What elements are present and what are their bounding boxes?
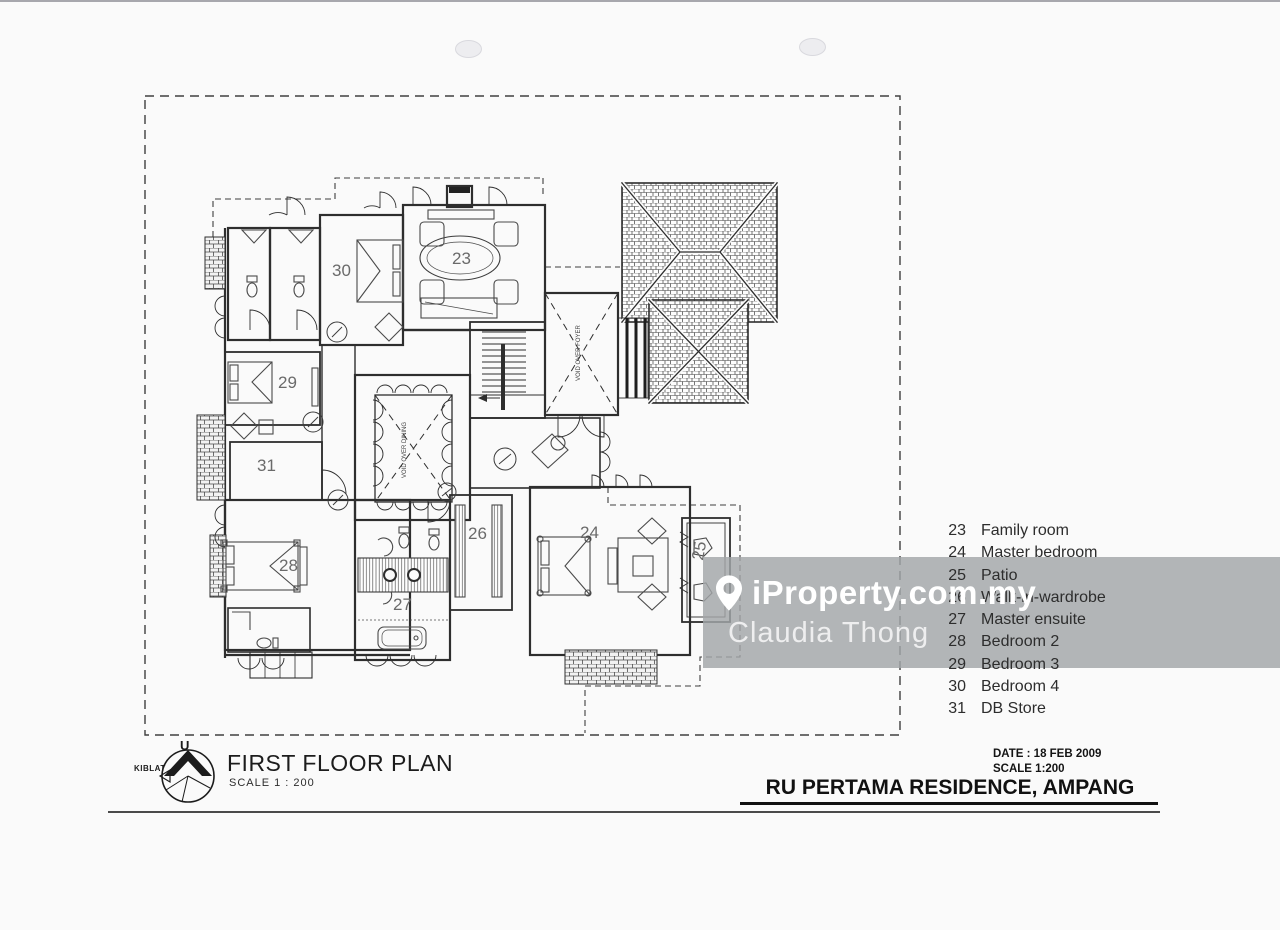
toilet: [294, 276, 304, 297]
legend-number: 28: [936, 631, 966, 653]
legend-label: Family room: [966, 520, 1069, 542]
watermark-brand-text: iProperty.com.my: [752, 574, 1036, 612]
legend-label: Bedroom 4: [966, 676, 1059, 698]
rug: [618, 538, 668, 592]
tv-console: [312, 368, 318, 406]
wardrobe-runs: [455, 505, 502, 597]
footer-rule: [108, 811, 1160, 813]
legend-label: Master ensuite: [966, 609, 1086, 631]
legend-label: Bedroom 3: [966, 654, 1059, 676]
shower: [242, 230, 266, 243]
watermark-agent-text: Claudia Thong: [728, 617, 929, 650]
legend-item: 27 Master ensuite: [936, 609, 1106, 631]
room-legend: 23 Family room 24 Master bedroom 25 Pati…: [936, 520, 1106, 721]
stairs: [470, 332, 545, 410]
bed-bedroom4: [357, 240, 403, 302]
ottoman: [633, 556, 653, 576]
chair: [231, 413, 257, 439]
tv-console: [300, 547, 307, 585]
shower: [232, 612, 250, 630]
map-pin-icon: [716, 575, 742, 611]
legend-label: DB Store: [966, 698, 1046, 720]
armchair: [494, 280, 518, 304]
watermark-brand: iProperty.com.my: [716, 574, 1036, 612]
chair: [638, 584, 666, 610]
shower: [289, 230, 313, 243]
roof: [618, 183, 777, 403]
plan-title: FIRST FLOOR PLAN: [227, 750, 453, 777]
toilet: [247, 276, 257, 297]
room-label-24: 24: [580, 523, 599, 542]
watermark-agent: Claudia Thong: [728, 617, 929, 650]
legend-number: 31: [936, 698, 966, 720]
room-label-31: 31: [257, 456, 276, 475]
legend-number: 29: [936, 654, 966, 676]
legend-item: 31 DB Store: [936, 698, 1106, 720]
toilet: [399, 527, 409, 548]
project-underline: [740, 802, 1158, 805]
bathtub: [378, 627, 426, 649]
chair: [375, 313, 403, 341]
console: [608, 548, 617, 584]
vanity-counter: [358, 558, 448, 592]
plan-scale: SCALE 1 : 200: [229, 777, 315, 789]
porch-beams: [618, 318, 648, 398]
legend-label: Master bedroom: [966, 542, 1098, 564]
armchair: [420, 280, 444, 304]
legend-number: 27: [936, 609, 966, 631]
terrace-paving: [565, 650, 657, 684]
armchair: [494, 222, 518, 246]
bed-bedroom3: [228, 362, 272, 403]
legend-item: 24 Master bedroom: [936, 542, 1106, 564]
hall-console: [532, 434, 568, 468]
legend-item: 30 Bedroom 4: [936, 676, 1106, 698]
legend-item: 29 Bedroom 3: [936, 654, 1106, 676]
scanned-floor-plan-page: 23 24 25 26 27 28 29 30 31 VOID OVER DIN…: [0, 0, 1280, 930]
void-label-dining: VOID OVER DINING: [402, 422, 408, 478]
legend-number: 23: [936, 520, 966, 542]
legend-label: Bedroom 2: [966, 631, 1059, 653]
legend-item: 23 Family room: [936, 520, 1106, 542]
legend-item: 28 Bedroom 2: [936, 631, 1106, 653]
room-label-23: 23: [452, 249, 471, 268]
scale-label: SCALE 1:200: [993, 763, 1065, 775]
sideboard: [428, 210, 494, 219]
legend-number: 30: [936, 676, 966, 698]
room-label-30: 30: [332, 261, 351, 280]
toilet: [429, 529, 439, 550]
void-labels: VOID OVER DINING VOID OVER FOYER: [402, 325, 582, 479]
legend-number: 24: [936, 542, 966, 564]
void-label-foyer: VOID OVER FOYER: [576, 325, 582, 381]
courtyard-void: [355, 375, 470, 520]
side-table: [259, 420, 273, 434]
bed-master: [537, 536, 591, 596]
room-label-29: 29: [278, 373, 297, 392]
room-label-26: 26: [468, 524, 487, 543]
toilet: [257, 638, 278, 648]
room-label-28: 28: [279, 556, 298, 575]
project-name: RU PERTAMA RESIDENCE, AMPANG: [740, 776, 1160, 800]
room-label-27: 27: [393, 595, 412, 614]
date-label: DATE : 18 FEB 2009: [993, 748, 1101, 760]
chair: [638, 518, 666, 544]
